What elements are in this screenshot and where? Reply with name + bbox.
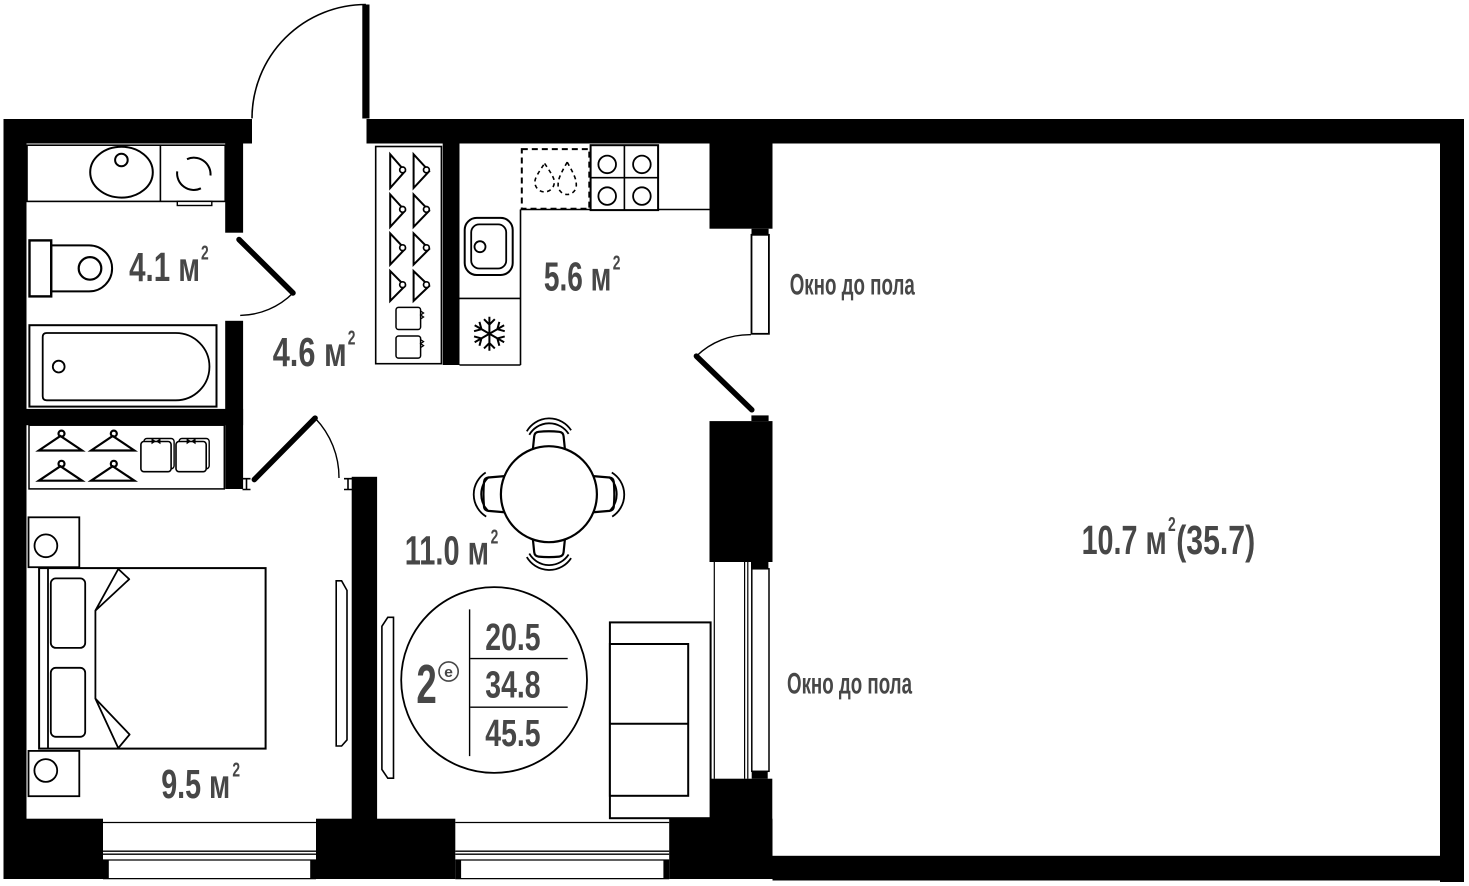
- svg-text:2: 2: [1168, 513, 1176, 536]
- svg-text:Окно до пола: Окно до пола: [790, 270, 916, 302]
- svg-text:2: 2: [201, 242, 209, 265]
- svg-text:4.1 м: 4.1 м: [129, 244, 200, 290]
- svg-text:(35.7): (35.7): [1176, 517, 1255, 563]
- svg-text:11.0 м: 11.0 м: [405, 528, 489, 574]
- svg-text:10.7 м: 10.7 м: [1082, 517, 1167, 563]
- svg-text:4.6 м: 4.6 м: [273, 329, 347, 375]
- svg-text:2: 2: [348, 326, 356, 349]
- svg-text:20.5: 20.5: [485, 616, 540, 659]
- svg-text:2: 2: [416, 653, 436, 715]
- svg-text:5.6 м: 5.6 м: [544, 254, 612, 300]
- svg-text:9.5 м: 9.5 м: [161, 761, 230, 807]
- svg-text:45.5: 45.5: [485, 712, 540, 755]
- svg-text:2: 2: [613, 251, 621, 274]
- svg-text:е: е: [444, 664, 453, 681]
- svg-text:2: 2: [491, 526, 499, 549]
- svg-text:2: 2: [232, 758, 240, 781]
- svg-text:34.8: 34.8: [485, 663, 540, 706]
- svg-text:Окно до пола: Окно до пола: [787, 668, 912, 700]
